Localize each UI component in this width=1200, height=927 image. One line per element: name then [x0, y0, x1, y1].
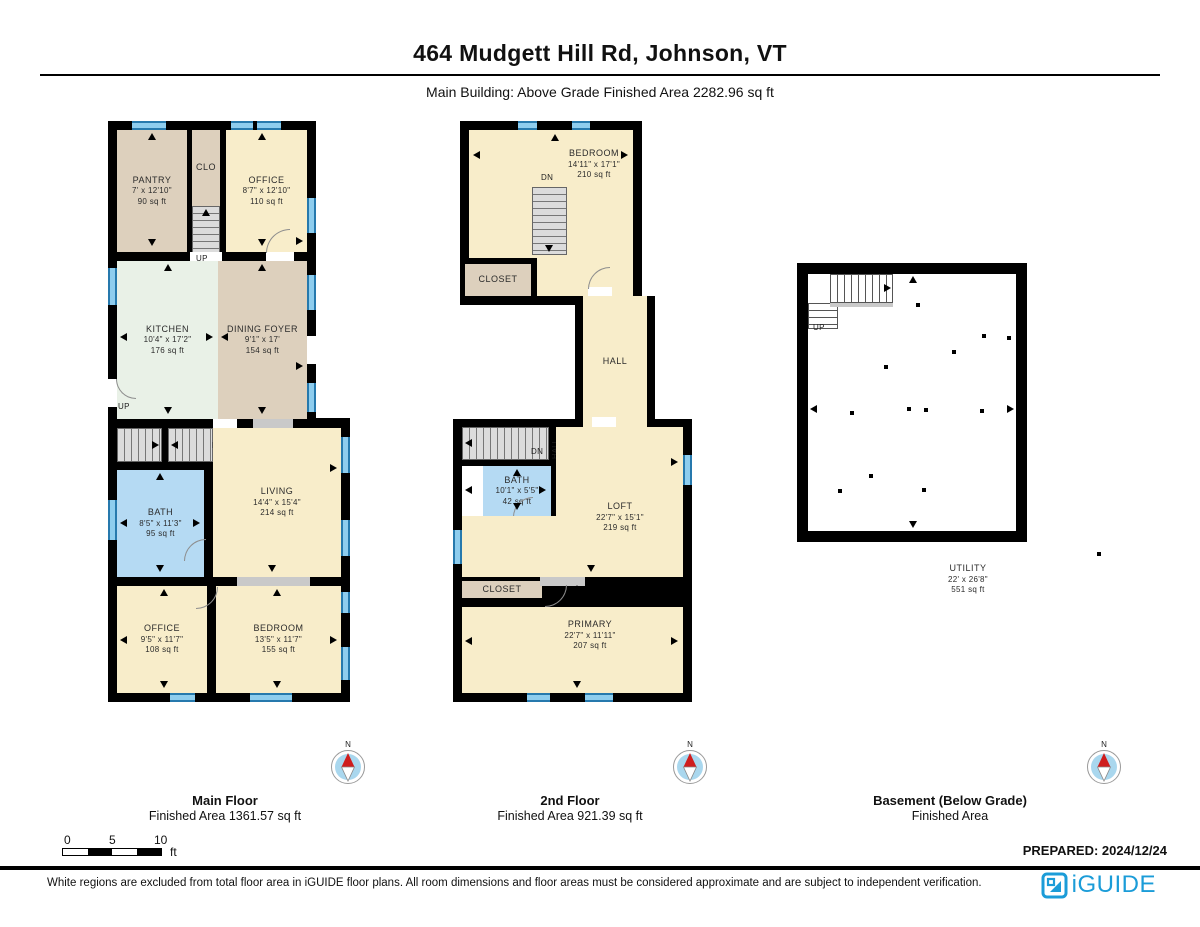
wall-arrow: [551, 134, 559, 141]
footer-disclaimer: White regions are excluded from total fl…: [47, 877, 1027, 889]
post-dot: [952, 350, 956, 354]
wall-arrow: [539, 486, 546, 494]
window: [108, 268, 117, 305]
wall-arrow: [296, 237, 303, 245]
compass-north-label: N: [326, 740, 370, 749]
window: [585, 693, 613, 702]
wall-arrow: [160, 681, 168, 688]
room-hall: HALL: [583, 296, 647, 427]
compass-main: N: [326, 740, 370, 790]
room-clo: CLO: [192, 130, 220, 206]
stair-arrow-icon: [465, 439, 472, 447]
main-floor-plan: PANTRY7' x 12'10"90 sq ft CLO UP OFFICE8…: [108, 121, 350, 702]
wall-arrow: [148, 133, 156, 140]
wall-arrow: [221, 333, 228, 341]
window: [307, 198, 316, 233]
scale-ticks: 0 5 10: [62, 833, 202, 846]
wall-arrow: [156, 565, 164, 572]
wall-arrow: [671, 637, 678, 645]
wall-arrow: [513, 469, 521, 476]
scale-bar-segments: [62, 848, 162, 856]
wall-arrow: [810, 405, 817, 413]
caption-second-floor: 2nd Floor Finished Area 921.39 sq ft: [440, 793, 700, 823]
iguide-logo-text: iGUIDE: [1072, 871, 1156, 899]
compass-basement: N: [1082, 740, 1126, 790]
wall-arrow: [258, 239, 266, 246]
window: [257, 121, 281, 130]
stair-dn-label2: DN: [531, 447, 543, 456]
compass-north-label: N: [668, 740, 712, 749]
post-dot: [869, 474, 873, 478]
room-closet-lower: CLOSET: [462, 581, 542, 603]
wall-arrow: [193, 519, 200, 527]
window: [572, 121, 590, 130]
post-dot: [1007, 336, 1011, 340]
stair-edge: [830, 303, 893, 307]
compass-north-label: N: [1082, 740, 1126, 749]
window: [307, 275, 316, 310]
wall-arrow: [120, 519, 127, 527]
stair-up-label-basement: UP: [813, 323, 825, 332]
wall-arrow: [1007, 405, 1014, 413]
wall-arrow: [120, 333, 127, 341]
stair-arrow-icon: [545, 245, 553, 252]
room-office-top: OFFICE8'7" x 12'10"110 sq ft: [226, 130, 307, 252]
post-dot: [850, 411, 854, 415]
wall-arrow: [120, 636, 127, 644]
window: [683, 455, 692, 485]
window: [341, 592, 350, 613]
prepared-date: PREPARED: 2024/12/24: [1023, 843, 1167, 858]
stair-dn-label: DN: [541, 173, 553, 182]
wall-arrow: [206, 333, 213, 341]
room-bedroom-second-label: BEDROOM14'11" x 17'1"210 sq ft: [542, 148, 646, 180]
window: [132, 121, 166, 130]
footer-divider: [0, 866, 1200, 870]
post-dot: [922, 488, 926, 492]
wall-arrow: [160, 589, 168, 596]
post-dot: [916, 303, 920, 307]
wall-arrow: [148, 239, 156, 246]
wall-arrow: [330, 464, 337, 472]
compass-icon: [672, 749, 708, 785]
stair-arrow-icon: [152, 441, 159, 449]
room-closet-upper: CLOSET: [465, 258, 537, 296]
post-dot: [980, 409, 984, 413]
wall-arrow: [573, 585, 581, 592]
window: [108, 500, 117, 540]
window: [527, 693, 550, 702]
window: [307, 383, 316, 412]
room-living: LIVING14'4" x 15'4"214 sq ft: [213, 428, 341, 577]
wall-arrow: [621, 151, 628, 159]
compass-icon: [330, 749, 366, 785]
wall-arrow: [465, 486, 472, 494]
stair-arrow-icon: [884, 284, 891, 292]
wall-arrow: [268, 565, 276, 572]
window: [231, 121, 253, 130]
wall-arrow: [258, 264, 266, 271]
stair-arrow-icon: [171, 441, 178, 449]
threshold: [237, 577, 310, 586]
room-pantry: PANTRY7' x 12'10"90 sq ft: [117, 130, 187, 252]
floorplan-page: 464 Mudgett Hill Rd, Johnson, VT Main Bu…: [0, 0, 1200, 927]
iguide-brand: iGUIDE: [1041, 871, 1156, 899]
door-gap: [266, 252, 294, 261]
wall-arrow: [258, 133, 266, 140]
wall-arrow: [164, 264, 172, 271]
post-dot: [884, 365, 888, 369]
entry-up-label: UP: [118, 402, 130, 411]
scale-bar: 0 5 10 ft: [62, 833, 202, 856]
wall-arrow: [164, 407, 172, 414]
wall-arrow: [513, 503, 521, 510]
window: [250, 693, 292, 702]
basement-plan: UTILITY22' x 26'8"551 sq ft UP: [797, 263, 1027, 542]
second-floor-plan: BEDROOM14'11" x 17'1"210 sq ft DN CLOSET…: [453, 121, 692, 702]
page-title: 464 Mudgett Hill Rd, Johnson, VT: [0, 40, 1200, 67]
post-dot: [924, 408, 928, 412]
detached-point: [1097, 552, 1101, 556]
room-loft-label: LOFT22'7" x 15'1"219 sq ft: [570, 501, 670, 533]
threshold: [253, 419, 293, 428]
window: [341, 437, 350, 473]
page-subtitle: Main Building: Above Grade Finished Area…: [0, 84, 1200, 100]
wall-arrow: [909, 521, 917, 528]
wall-arrow: [330, 636, 337, 644]
post-dot: [838, 489, 842, 493]
title-divider: [40, 74, 1160, 76]
caption-main-floor: Main Floor Finished Area 1361.57 sq ft: [95, 793, 355, 823]
room-primary-label: PRIMARY22'7" x 11'11"207 sq ft: [540, 619, 640, 651]
room-office-bottom: OFFICE9'5" x 11'7"108 sq ft: [117, 586, 207, 693]
wall-arrow: [273, 681, 281, 688]
stair-arrow-icon: [202, 209, 210, 216]
window: [518, 121, 537, 130]
caption-basement: Basement (Below Grade) Finished Area: [820, 793, 1080, 823]
room-utility-label: UTILITY22' x 26'8"551 sq ft: [928, 563, 1008, 595]
wall-arrow: [156, 473, 164, 480]
post-dot: [982, 334, 986, 338]
room-bedroom-main: BEDROOM13'5" x 11'7"155 sq ft: [216, 586, 341, 693]
wall-arrow: [465, 637, 472, 645]
wall-arrow: [671, 458, 678, 466]
wall-arrow: [296, 362, 303, 370]
wall-arrow: [273, 589, 281, 596]
scale-unit: ft: [170, 845, 177, 859]
window: [341, 647, 350, 680]
window: [453, 530, 462, 564]
wall-arrow: [587, 565, 595, 572]
wall-arrow: [473, 151, 480, 159]
post-dot: [907, 407, 911, 411]
compass-icon: [1086, 749, 1122, 785]
wall-arrow: [258, 407, 266, 414]
compass-second: N: [668, 740, 712, 790]
wall-arrow: [573, 681, 581, 688]
window: [170, 693, 195, 702]
door-gap: [307, 336, 316, 364]
room-dining-foyer: DINING FOYER9'1" x 17'154 sq ft: [218, 261, 307, 419]
wall-arrow: [909, 276, 917, 283]
window: [341, 520, 350, 556]
iguide-logo-icon: [1041, 872, 1068, 899]
